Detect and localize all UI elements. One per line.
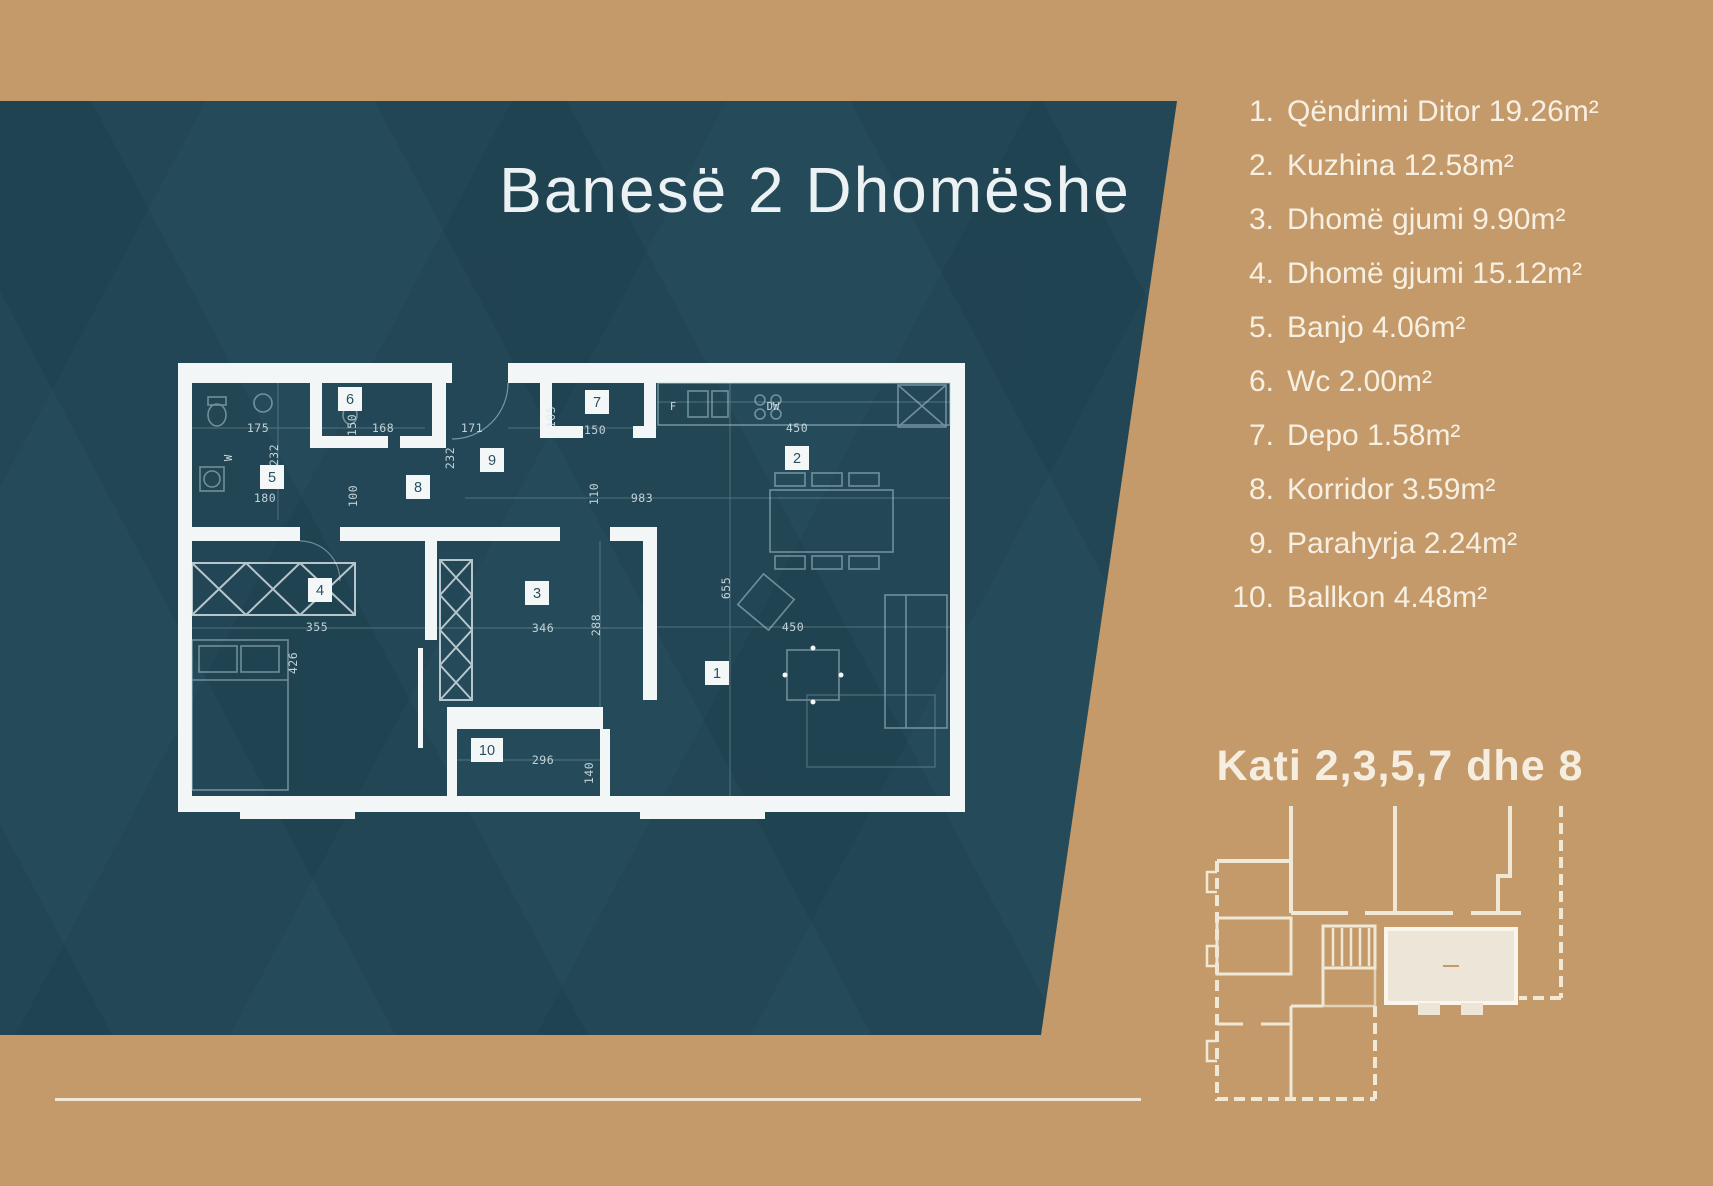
svg-text:450: 450 — [782, 620, 804, 634]
list-number: 6. — [1228, 365, 1274, 399]
list-text: Banjo 4.06m² — [1287, 311, 1465, 345]
svg-text:6: 6 — [346, 392, 354, 408]
list-number: 10. — [1228, 581, 1274, 615]
highlighted-unit — [1386, 929, 1516, 1015]
room-badge: 6 — [338, 387, 362, 411]
svg-text:355: 355 — [306, 620, 328, 634]
room-badge: 7 — [585, 390, 609, 414]
svg-text:8: 8 — [414, 480, 422, 496]
svg-text:232: 232 — [443, 447, 457, 469]
svg-text:346: 346 — [532, 621, 554, 635]
svg-text:1: 1 — [713, 666, 721, 682]
svg-text:W: W — [223, 454, 235, 461]
svg-text:100: 100 — [346, 485, 360, 507]
toilet — [208, 397, 226, 426]
list-text: Korridor 3.59m² — [1287, 473, 1495, 507]
list-item: 2.Kuzhina 12.58m² — [1228, 139, 1688, 193]
list-item: 7.Depo 1.58m² — [1228, 409, 1688, 463]
list-number: 9. — [1228, 527, 1274, 561]
room-badge: 5 — [260, 465, 284, 489]
list-text: Kuzhina 12.58m² — [1287, 149, 1514, 183]
room-list: 1.Qëndrimi Ditor 19.26m² 2.Kuzhina 12.58… — [1228, 85, 1688, 625]
dining-table — [770, 473, 893, 569]
svg-text:426: 426 — [286, 652, 300, 674]
coffee-table — [787, 650, 839, 700]
mini-building-plan — [1203, 806, 1573, 1106]
list-number: 3. — [1228, 203, 1274, 237]
washing-machine — [200, 467, 224, 491]
svg-text:DW: DW — [767, 401, 780, 413]
list-item: 3.Dhomë gjumi 9.90m² — [1228, 193, 1688, 247]
svg-text:3: 3 — [533, 586, 541, 602]
list-text: Parahyrja 2.24m² — [1287, 527, 1517, 561]
svg-text:F: F — [670, 401, 676, 413]
svg-text:2: 2 — [793, 451, 801, 467]
sink — [254, 394, 272, 412]
svg-text:150: 150 — [584, 423, 606, 437]
svg-text:175: 175 — [247, 421, 269, 435]
fridge — [898, 385, 946, 427]
list-item: 4.Dhomë gjumi 15.12m² — [1228, 247, 1688, 301]
list-item: 10.Ballkon 4.48m² — [1228, 571, 1688, 625]
svg-text:4: 4 — [316, 583, 324, 599]
room-badge: 9 — [480, 448, 504, 472]
svg-text:140: 140 — [582, 762, 596, 784]
room-badge: 2 — [785, 446, 809, 470]
svg-text:168: 168 — [372, 421, 394, 435]
svg-text:7: 7 — [593, 395, 601, 411]
svg-text:150: 150 — [345, 414, 359, 436]
bedroom-door-arc — [300, 541, 340, 581]
svg-text:232: 232 — [267, 444, 281, 466]
room-badge: 8 — [406, 475, 430, 499]
stair-core — [1323, 926, 1375, 1006]
svg-text:10: 10 — [479, 743, 495, 759]
svg-text:110: 110 — [587, 483, 601, 505]
svg-text:288: 288 — [589, 614, 603, 636]
list-number: 7. — [1228, 419, 1274, 453]
main-floor-plan: 175 232 180 168 150 171 232 105 150 450 … — [175, 355, 970, 820]
list-number: 1. — [1228, 95, 1274, 129]
kitchen-counter — [658, 383, 950, 425]
list-number: 4. — [1228, 257, 1274, 291]
svg-text:180: 180 — [254, 491, 276, 505]
list-text: Qëndrimi Ditor 19.26m² — [1287, 95, 1599, 129]
list-text: Dhomë gjumi 9.90m² — [1287, 203, 1565, 237]
list-item: 1.Qëndrimi Ditor 19.26m² — [1228, 85, 1688, 139]
list-item: 8.Korridor 3.59m² — [1228, 463, 1688, 517]
rug — [807, 695, 935, 767]
list-item: 9.Parahyrja 2.24m² — [1228, 517, 1688, 571]
floor-heading: Kati 2,3,5,7 dhe 8 — [1200, 742, 1600, 791]
room-badge: 3 — [525, 581, 549, 605]
divider-line — [55, 1098, 1141, 1101]
room-badge: 1 — [705, 661, 729, 685]
svg-text:983: 983 — [631, 491, 653, 505]
walls — [178, 363, 965, 819]
list-number: 8. — [1228, 473, 1274, 507]
list-number: 2. — [1228, 149, 1274, 183]
list-item: 5.Banjo 4.06m² — [1228, 301, 1688, 355]
dimension-lines — [192, 383, 950, 796]
list-text: Dhomë gjumi 15.12m² — [1287, 257, 1582, 291]
list-text: Ballkon 4.48m² — [1287, 581, 1487, 615]
sofa — [885, 595, 947, 728]
list-text: Depo 1.58m² — [1287, 419, 1460, 453]
room-badge: 4 — [308, 578, 332, 602]
page-title: Banesë 2 Dhomëshe — [400, 152, 1230, 232]
svg-text:171: 171 — [461, 421, 483, 435]
slide: Banesë 2 Dhomëshe — [0, 0, 1713, 1186]
list-item: 6.Wc 2.00m² — [1228, 355, 1688, 409]
room-badge: 10 — [471, 738, 503, 762]
svg-text:655: 655 — [719, 577, 733, 599]
svg-text:5: 5 — [268, 470, 276, 486]
list-number: 5. — [1228, 311, 1274, 345]
svg-text:9: 9 — [488, 453, 496, 469]
svg-text:296: 296 — [532, 753, 554, 767]
list-text: Wc 2.00m² — [1287, 365, 1432, 399]
bed — [192, 640, 288, 790]
svg-text:450: 450 — [786, 421, 808, 435]
svg-text:105: 105 — [544, 406, 558, 428]
